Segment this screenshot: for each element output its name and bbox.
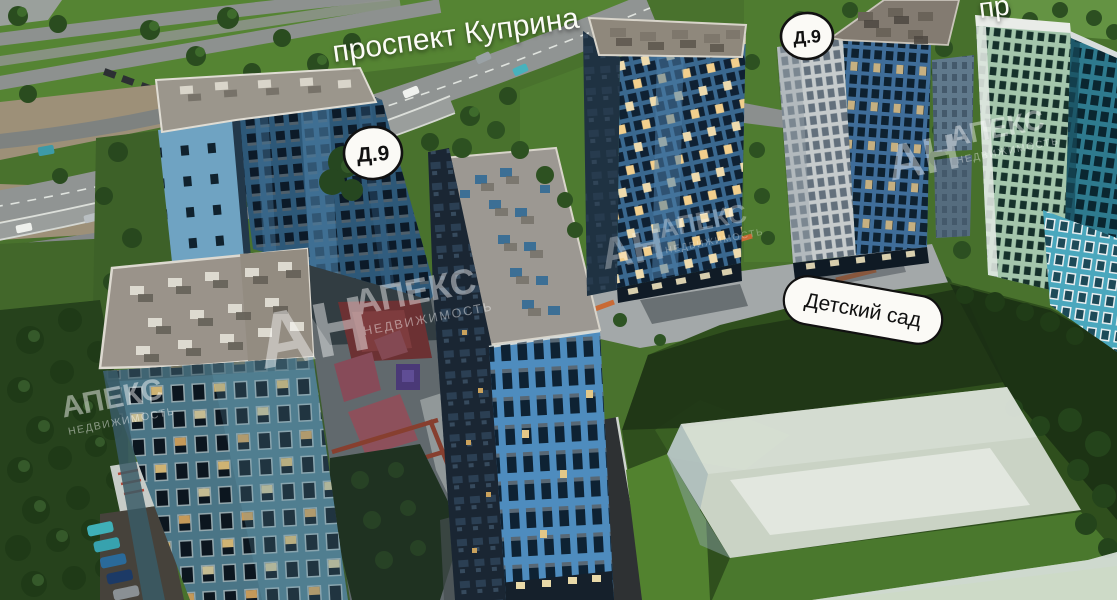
svg-text:пр: пр: [977, 0, 1011, 24]
svg-text:Д.9: Д.9: [792, 26, 821, 48]
svg-text:Д.9: Д.9: [356, 142, 390, 167]
